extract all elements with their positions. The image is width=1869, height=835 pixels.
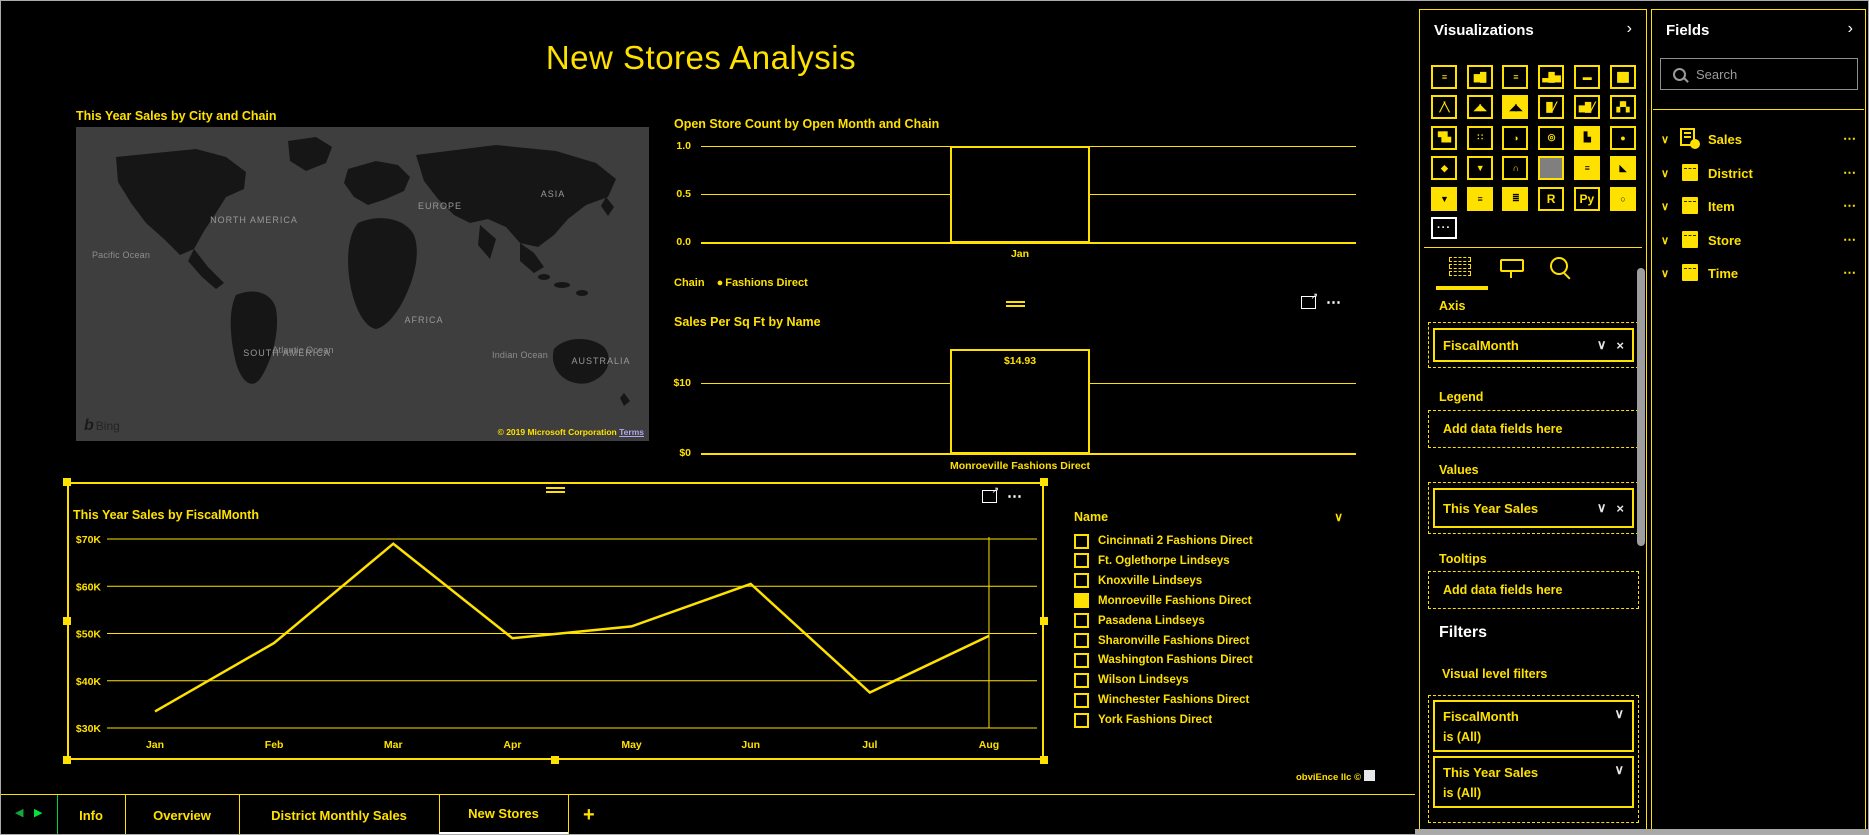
page-tab-info[interactable]: Info — [57, 795, 125, 835]
slicer-item[interactable]: Ft. Oglethorpe Lindseys — [1074, 552, 1230, 570]
chevron-down-icon[interactable]: ∨ — [1661, 234, 1669, 247]
legend-item-label[interactable]: Fashions Direct — [725, 277, 808, 289]
visualizations-pane: Visualizations › ≡▆█≡▃█▅▬██╱╲◢◣◢◣█╱▅█╱▞▚… — [1419, 9, 1647, 831]
checkbox-icon[interactable] — [1074, 573, 1089, 588]
field-table-label: Item — [1708, 199, 1735, 214]
more-options-icon[interactable]: ⋯ — [1843, 232, 1857, 248]
field-table-row-sales[interactable]: ∨Sales⋯ — [1652, 126, 1865, 154]
viz-icon-arcgis-map[interactable]: ○ — [1610, 187, 1636, 211]
visual-header: ↗ ⋯ — [1301, 296, 1342, 309]
previous-page-arrow-icon[interactable]: ◀ — [15, 806, 23, 819]
chevron-down-icon[interactable]: ∨ — [1597, 337, 1607, 353]
viz-icon-matrix[interactable]: ≣ — [1502, 187, 1528, 211]
legend-bullet-icon: ● — [717, 277, 724, 289]
y-axis-label: 1.0 — [676, 140, 691, 152]
y-axis-label: $70K — [76, 534, 102, 546]
slicer-item[interactable]: York Fashions Direct — [1074, 711, 1212, 729]
well-label-values: Values — [1439, 463, 1479, 477]
chevron-down-icon[interactable]: ∨ — [1661, 200, 1669, 213]
viz-icon-line-and-stacked-column-chart[interactable]: █╱ — [1538, 95, 1564, 119]
field-table-label: Sales — [1708, 132, 1742, 147]
map-ocean-label: Pacific Ocean — [92, 250, 150, 260]
viz-icon-clustered-bar-chart[interactable]: ≡ — [1502, 65, 1528, 89]
visual-level-filters-label: Visual level filters — [1442, 667, 1547, 681]
viz-icon-map[interactable]: ● — [1610, 126, 1636, 150]
map-visual[interactable]: NORTH AMERICAEUROPEASIAAFRICASOUTH AMERI… — [76, 127, 649, 441]
analytics-magnifier-icon — [1550, 257, 1568, 275]
axis-well[interactable]: FiscalMonth ∨ × — [1428, 322, 1639, 368]
field-wells-icon — [1449, 257, 1471, 275]
watermark: obviEnce llc © — [1296, 772, 1361, 783]
collapse-pane-icon[interactable]: › — [1627, 20, 1632, 38]
more-visuals-icon[interactable]: ··· — [1431, 217, 1457, 239]
y-axis-label: $60K — [76, 581, 102, 593]
x-axis-label: Jan — [146, 739, 164, 751]
tab-fields[interactable] — [1449, 257, 1471, 275]
slicer-item-label: Sharonville Fashions Direct — [1098, 635, 1249, 647]
x-axis-label: Apr — [503, 739, 521, 751]
table-icon — [1682, 264, 1698, 281]
well-label-legend: Legend — [1439, 390, 1483, 404]
viz-icon-scatter-chart[interactable]: ∷ — [1467, 126, 1493, 150]
viz-icon-ribbon-chart[interactable]: ▞▚ — [1610, 95, 1636, 119]
more-options-icon[interactable]: ⋯ — [1326, 299, 1342, 307]
slicer-item-label: York Fashions Direct — [1098, 714, 1212, 726]
viz-icon-line-chart[interactable]: ╱╲ — [1431, 95, 1457, 119]
viz-icon-filled-map[interactable]: ◆ — [1431, 156, 1457, 180]
checkbox-icon[interactable] — [1074, 593, 1089, 608]
chevron-down-icon[interactable]: ∨ — [1614, 762, 1624, 778]
divider — [1424, 247, 1642, 248]
viz-icon-card[interactable] — [1538, 156, 1564, 180]
tooltips-well[interactable]: Add data fields here — [1428, 571, 1639, 609]
column-bar[interactable] — [950, 146, 1090, 243]
slicer-item-label: Ft. Oglethorpe Lindseys — [1098, 555, 1230, 567]
slicer-item-label: Winchester Fashions Direct — [1098, 694, 1249, 706]
map-continent-label: EUROPE — [418, 201, 462, 211]
y-axis-label: $10 — [673, 377, 691, 389]
collapse-pane-icon[interactable]: › — [1848, 20, 1853, 38]
chevron-down-icon[interactable]: ∨ — [1661, 167, 1669, 180]
legend-title: Chain — [674, 277, 705, 289]
viz-icon-clustered-column-chart[interactable]: ▃█▅ — [1538, 65, 1564, 89]
x-axis-label: Mar — [384, 739, 403, 751]
viz-icon-r-script-visual[interactable]: R — [1538, 187, 1564, 211]
y-axis-label: 0.0 — [676, 236, 691, 248]
remove-field-icon[interactable]: × — [1616, 501, 1624, 516]
values-well[interactable]: This Year Sales ∨ × — [1428, 482, 1639, 534]
checkbox-icon[interactable] — [1074, 713, 1089, 728]
field-table-row-district[interactable]: ∨District⋯ — [1652, 160, 1865, 188]
field-chip-this-year-sales[interactable]: This Year Sales ∨ × — [1433, 488, 1634, 528]
field-table-row-item[interactable]: ∨Item⋯ — [1652, 193, 1865, 221]
page-title: New Stores Analysis — [351, 39, 1051, 77]
chevron-down-icon[interactable]: ∨ — [1597, 500, 1607, 516]
chevron-down-icon[interactable]: ∨ — [1661, 133, 1669, 146]
scrollbar[interactable] — [1637, 268, 1645, 546]
fields-pane: Fields › ∨Sales⋯∨District⋯∨Item⋯∨Store⋯∨… — [1651, 9, 1866, 831]
field-table-label: Time — [1708, 266, 1738, 281]
map-ocean-label: Atlantic Ocean — [272, 345, 333, 355]
more-options-icon[interactable]: ⋯ — [1843, 265, 1857, 281]
checkbox-icon[interactable] — [1074, 534, 1089, 549]
slicer-item-label: Cincinnati 2 Fashions Direct — [1098, 535, 1253, 547]
x-axis-label: Monroeville Fashions Direct — [950, 460, 1090, 472]
world-map — [76, 127, 649, 441]
visual-drag-handle[interactable] — [1006, 301, 1025, 308]
viz-icon-slicer[interactable]: ▼ — [1431, 187, 1457, 211]
slicer-header: Name — [1074, 510, 1108, 524]
y-axis-label: $50K — [76, 629, 102, 641]
page-tab-bar: ◀ ▶ InfoOverviewDistrict Monthly SalesNe… — [1, 794, 1415, 835]
bing-logo[interactable]: bBing — [84, 417, 120, 435]
field-chip-fiscalmonth[interactable]: FiscalMonth ∨ × — [1433, 328, 1634, 362]
map-visual-title: This Year Sales by City and Chain — [76, 109, 277, 123]
viz-icon-multi-row-card[interactable]: ≡ — [1574, 156, 1600, 180]
slicer-item[interactable]: Washington Fashions Direct — [1074, 651, 1253, 669]
chevron-down-icon[interactable]: ∨ — [1661, 267, 1669, 280]
legend-well[interactable]: Add data fields here — [1428, 410, 1639, 448]
slicer-item-label: Washington Fashions Direct — [1098, 654, 1253, 666]
data-label: $14.93 — [1004, 355, 1036, 367]
field-table-label: District — [1708, 166, 1753, 181]
x-axis-label: Feb — [265, 739, 284, 751]
terms-link[interactable]: Terms — [619, 427, 644, 437]
search-icon — [1673, 68, 1686, 81]
viz-icon-waterfall-chart[interactable]: ▜▙ — [1431, 126, 1457, 150]
viz-icon-stacked-bar-chart[interactable]: ≡ — [1431, 65, 1457, 89]
measure-dot-icon — [1690, 139, 1700, 149]
map-continent-label: NORTH AMERICA — [210, 215, 298, 225]
viz-icon-treemap[interactable]: ▙ — [1574, 126, 1600, 150]
active-tab-underline — [1436, 286, 1488, 290]
page-tab-new-stores[interactable]: New Stores — [439, 795, 568, 835]
slicer-item[interactable]: Pasadena Lindseys — [1074, 612, 1205, 630]
name-slicer: Name ∨ Cincinnati 2 Fashions DirectFt. O… — [1068, 506, 1353, 738]
more-options-icon[interactable]: ⋯ — [1843, 165, 1857, 181]
search-input[interactable] — [1694, 66, 1848, 83]
filter-card-fiscalmonth[interactable]: FiscalMonth ∨ is (All) — [1433, 700, 1634, 752]
y-axis-label: $0 — [679, 447, 691, 459]
window-bottom-bar — [1415, 829, 1869, 835]
divider — [568, 795, 569, 835]
slicer-item[interactable]: Monroeville Fashions Direct — [1074, 592, 1251, 610]
more-options-icon[interactable]: ⋯ — [1843, 131, 1857, 147]
slicer-item[interactable]: Sharonville Fashions Direct — [1074, 632, 1249, 650]
slicer-item-label: Monroeville Fashions Direct — [1098, 595, 1251, 607]
x-axis-label: Jul — [862, 739, 877, 751]
field-table-row-time[interactable]: ∨Time⋯ — [1652, 260, 1865, 288]
viz-icon-funnel-chart[interactable]: ▼ — [1467, 156, 1493, 180]
map-continent-label: ASIA — [541, 189, 566, 199]
viz-icon-line-and-clustered-column-chart[interactable]: ▅█╱ — [1574, 95, 1600, 119]
slicer-item[interactable]: Winchester Fashions Direct — [1074, 691, 1249, 709]
report-canvas: New Stores Analysis This Year Sales by C… — [1, 1, 1415, 794]
tab-format[interactable] — [1500, 259, 1524, 272]
viz-icon-100-stacked-column-chart[interactable]: ██ — [1610, 65, 1636, 89]
visual-level-filters-container: FiscalMonth ∨ is (All) This Year Sales ∨… — [1428, 695, 1639, 823]
table-icon — [1682, 231, 1698, 248]
filters-header: Filters — [1439, 624, 1487, 642]
viz-icon-table[interactable]: ≡ — [1467, 187, 1493, 211]
field-search[interactable] — [1660, 58, 1858, 90]
chevron-down-icon[interactable]: ∨ — [1334, 510, 1343, 524]
remove-field-icon[interactable]: × — [1616, 338, 1624, 353]
checkbox-icon[interactable] — [1074, 553, 1089, 568]
y-axis-label: $30K — [76, 723, 102, 735]
map-attribution: © 2019 Microsoft Corporation Terms — [498, 427, 644, 437]
slicer-item-label: Knoxville Lindseys — [1098, 575, 1202, 587]
tab-analytics[interactable] — [1550, 257, 1568, 275]
divider — [1653, 109, 1864, 110]
map-continent-label: AUSTRALIA — [571, 356, 630, 366]
focus-mode-icon[interactable]: ↗ — [1301, 296, 1316, 309]
viz-icon-100-stacked-bar-chart[interactable]: ▬ — [1574, 65, 1600, 89]
watermark-box — [1364, 770, 1375, 781]
x-axis-label: May — [621, 739, 642, 751]
new-page-button[interactable]: + — [583, 795, 595, 835]
viz-icon-area-chart[interactable]: ◢◣ — [1467, 95, 1493, 119]
chevron-down-icon[interactable]: ∨ — [1614, 706, 1624, 722]
map-continent-label: AFRICA — [404, 315, 443, 325]
viz-icon-pie-chart[interactable]: ◑ — [1502, 126, 1528, 150]
well-label-axis: Axis — [1439, 299, 1465, 313]
y-axis-label: $40K — [76, 676, 102, 688]
viz-icon-donut-chart[interactable]: ◎ — [1538, 126, 1564, 150]
checkbox-icon[interactable] — [1074, 633, 1089, 648]
chain-legend: Chain●Fashions Direct — [674, 277, 808, 289]
well-label-tooltips: Tooltips — [1439, 552, 1487, 566]
checkbox-icon[interactable] — [1074, 613, 1089, 628]
sales-line-series — [155, 544, 989, 712]
slicer-item[interactable]: Cincinnati 2 Fashions Direct — [1074, 532, 1253, 550]
line-chart: $70K$60K$50K$40K$30KJanFebMarAprMayJunJu… — [67, 482, 1044, 760]
table-icon — [1682, 164, 1698, 181]
viz-icon-python-visual[interactable]: Py — [1574, 187, 1600, 211]
viz-icon-kpi[interactable]: ◣ — [1610, 156, 1636, 180]
next-page-arrow-icon[interactable]: ▶ — [34, 806, 42, 819]
checkbox-icon[interactable] — [1074, 653, 1089, 668]
paint-roller-icon — [1500, 259, 1524, 272]
powerbi-report-window: New Stores Analysis This Year Sales by C… — [0, 0, 1869, 835]
slicer-item[interactable]: Knoxville Lindseys — [1074, 572, 1202, 590]
x-axis-label: Jun — [741, 739, 760, 751]
viz-icon-stacked-column-chart[interactable]: ▆█ — [1467, 65, 1493, 89]
field-table-row-store[interactable]: ∨Store⋯ — [1652, 227, 1865, 255]
page-tab-district-monthly-sales[interactable]: District Monthly Sales — [239, 795, 439, 835]
slicer-item[interactable]: Wilson Lindseys — [1074, 671, 1189, 689]
viz-icon-stacked-area-chart[interactable]: ◢◣ — [1502, 95, 1528, 119]
checkbox-icon[interactable] — [1074, 673, 1089, 688]
table-icon — [1682, 197, 1698, 214]
checkbox-icon[interactable] — [1074, 693, 1089, 708]
viz-icon-gauge[interactable]: ∩ — [1502, 156, 1528, 180]
fields-header: Fields — [1666, 22, 1709, 39]
sqft-chart-title: Sales Per Sq Ft by Name — [674, 315, 821, 329]
x-axis-label: Jan — [1011, 248, 1029, 260]
y-axis-label: 0.5 — [676, 188, 691, 200]
more-options-icon[interactable]: ⋯ — [1843, 198, 1857, 214]
filter-card-this-year-sales[interactable]: This Year Sales ∨ is (All) — [1433, 756, 1634, 808]
page-tab-overview[interactable]: Overview — [125, 795, 239, 835]
open-store-chart-title: Open Store Count by Open Month and Chain — [674, 117, 939, 131]
x-axis-label: Aug — [979, 739, 999, 751]
visualizations-header: Visualizations — [1434, 22, 1534, 39]
slicer-item-label: Pasadena Lindseys — [1098, 615, 1205, 627]
map-ocean-label: Indian Ocean — [492, 350, 548, 360]
field-table-label: Store — [1708, 233, 1741, 248]
slicer-item-label: Wilson Lindseys — [1098, 674, 1189, 686]
